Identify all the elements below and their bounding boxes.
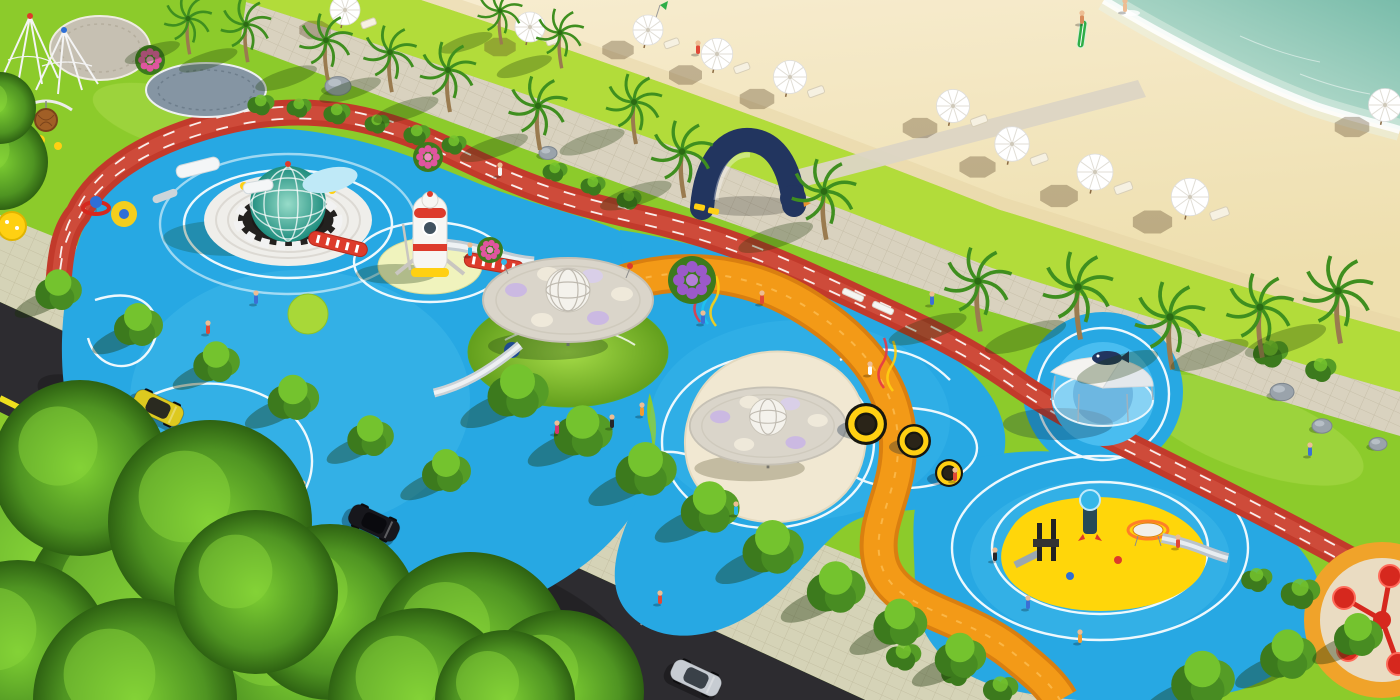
flower-bed bbox=[413, 142, 443, 172]
aerial-playground-render bbox=[0, 0, 1400, 700]
flower-bed bbox=[477, 237, 503, 263]
climb-dome bbox=[0, 212, 26, 240]
flower-bed bbox=[668, 256, 716, 304]
render-canvas bbox=[0, 0, 1400, 700]
tree-canopy bbox=[174, 510, 338, 674]
